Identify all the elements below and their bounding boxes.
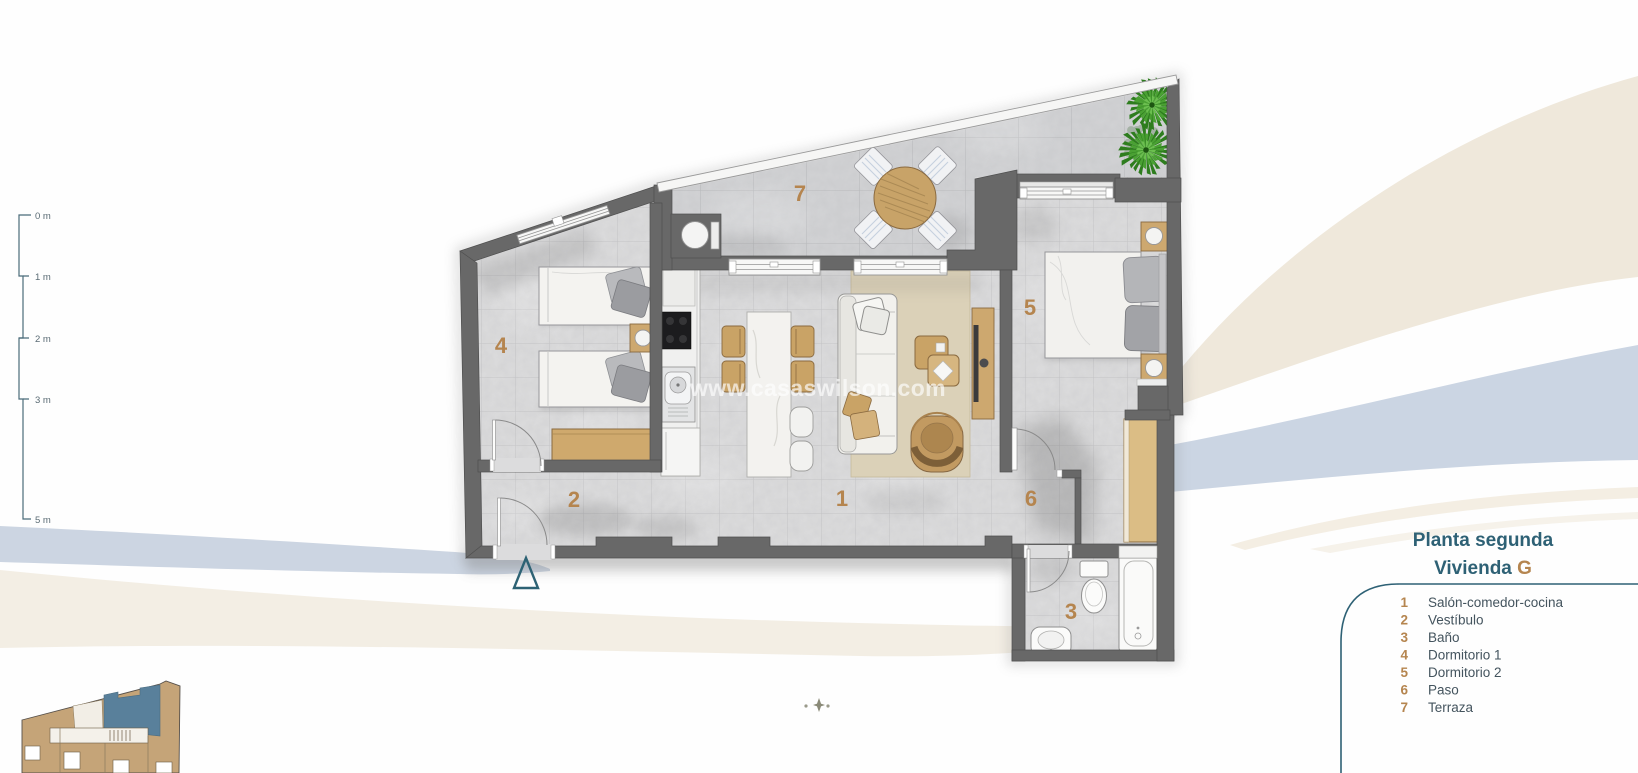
svg-text:7: 7 [1400,700,1408,715]
svg-text:Planta segunda: Planta segunda [1413,530,1554,551]
svg-text:7: 7 [794,181,806,206]
svg-text:Terraza: Terraza [1428,700,1474,715]
svg-text:6: 6 [1025,486,1037,511]
svg-text:6: 6 [1400,683,1408,698]
svg-text:Dormitorio 2: Dormitorio 2 [1428,665,1502,680]
svg-text:4: 4 [495,333,508,358]
svg-text:3 m: 3 m [35,395,51,406]
svg-text:1: 1 [1400,595,1408,610]
svg-text:5: 5 [1024,295,1036,320]
svg-text:1 m: 1 m [35,272,51,283]
svg-text:Paso: Paso [1428,683,1459,698]
svg-text:Vivienda G: Vivienda G [1434,558,1532,579]
svg-text:Salón-comedor-cocina: Salón-comedor-cocina [1428,595,1564,610]
svg-text:Vestíbulo: Vestíbulo [1428,613,1484,628]
svg-text:5: 5 [1400,665,1408,680]
svg-text:2 m: 2 m [35,334,51,345]
svg-text:5 m: 5 m [35,515,51,526]
svg-text:3: 3 [1065,599,1077,624]
svg-text:2: 2 [568,487,580,512]
svg-text:4: 4 [1400,648,1408,663]
svg-text:0 m: 0 m [35,211,51,222]
svg-text:3: 3 [1400,630,1408,645]
svg-text:1: 1 [836,486,848,511]
svg-text:Dormitorio 1: Dormitorio 1 [1428,648,1502,663]
svg-text:2: 2 [1400,613,1408,628]
svg-text:www.casaswilson.com: www.casaswilson.com [689,375,946,401]
svg-text:Baño: Baño [1428,630,1460,645]
